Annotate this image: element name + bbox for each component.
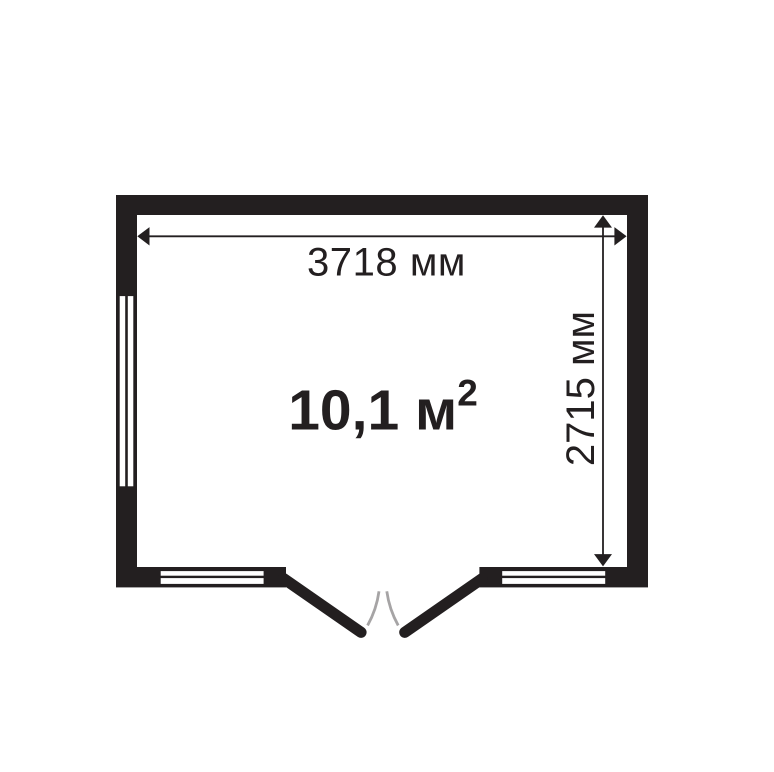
svg-text:3718 мм: 3718 мм (307, 241, 466, 285)
svg-text:10,1 м2: 10,1 м2 (288, 373, 478, 443)
svg-text:2715 мм: 2715 мм (559, 311, 603, 466)
